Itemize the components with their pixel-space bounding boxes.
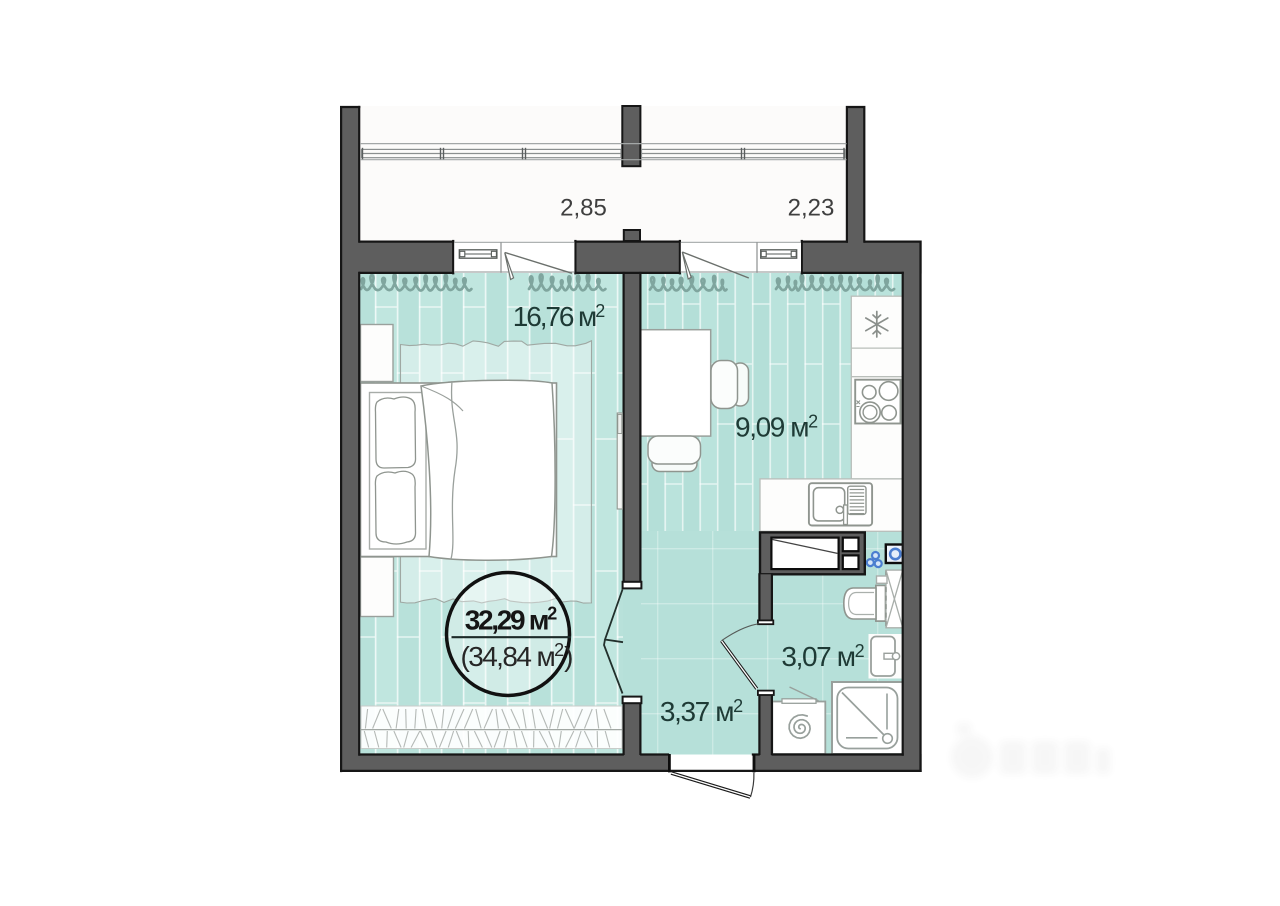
svg-text:3,07 м2: 3,07 м2 [781, 641, 864, 672]
svg-text:9,09 м2: 9,09 м2 [735, 412, 818, 443]
svg-text:32,29 м2: 32,29 м2 [465, 604, 557, 636]
svg-text:2,23: 2,23 [788, 194, 835, 221]
svg-text:16,76 м2: 16,76 м2 [513, 301, 605, 332]
svg-text:3,37 м2: 3,37 м2 [660, 696, 743, 727]
svg-text:2,85: 2,85 [560, 194, 607, 221]
